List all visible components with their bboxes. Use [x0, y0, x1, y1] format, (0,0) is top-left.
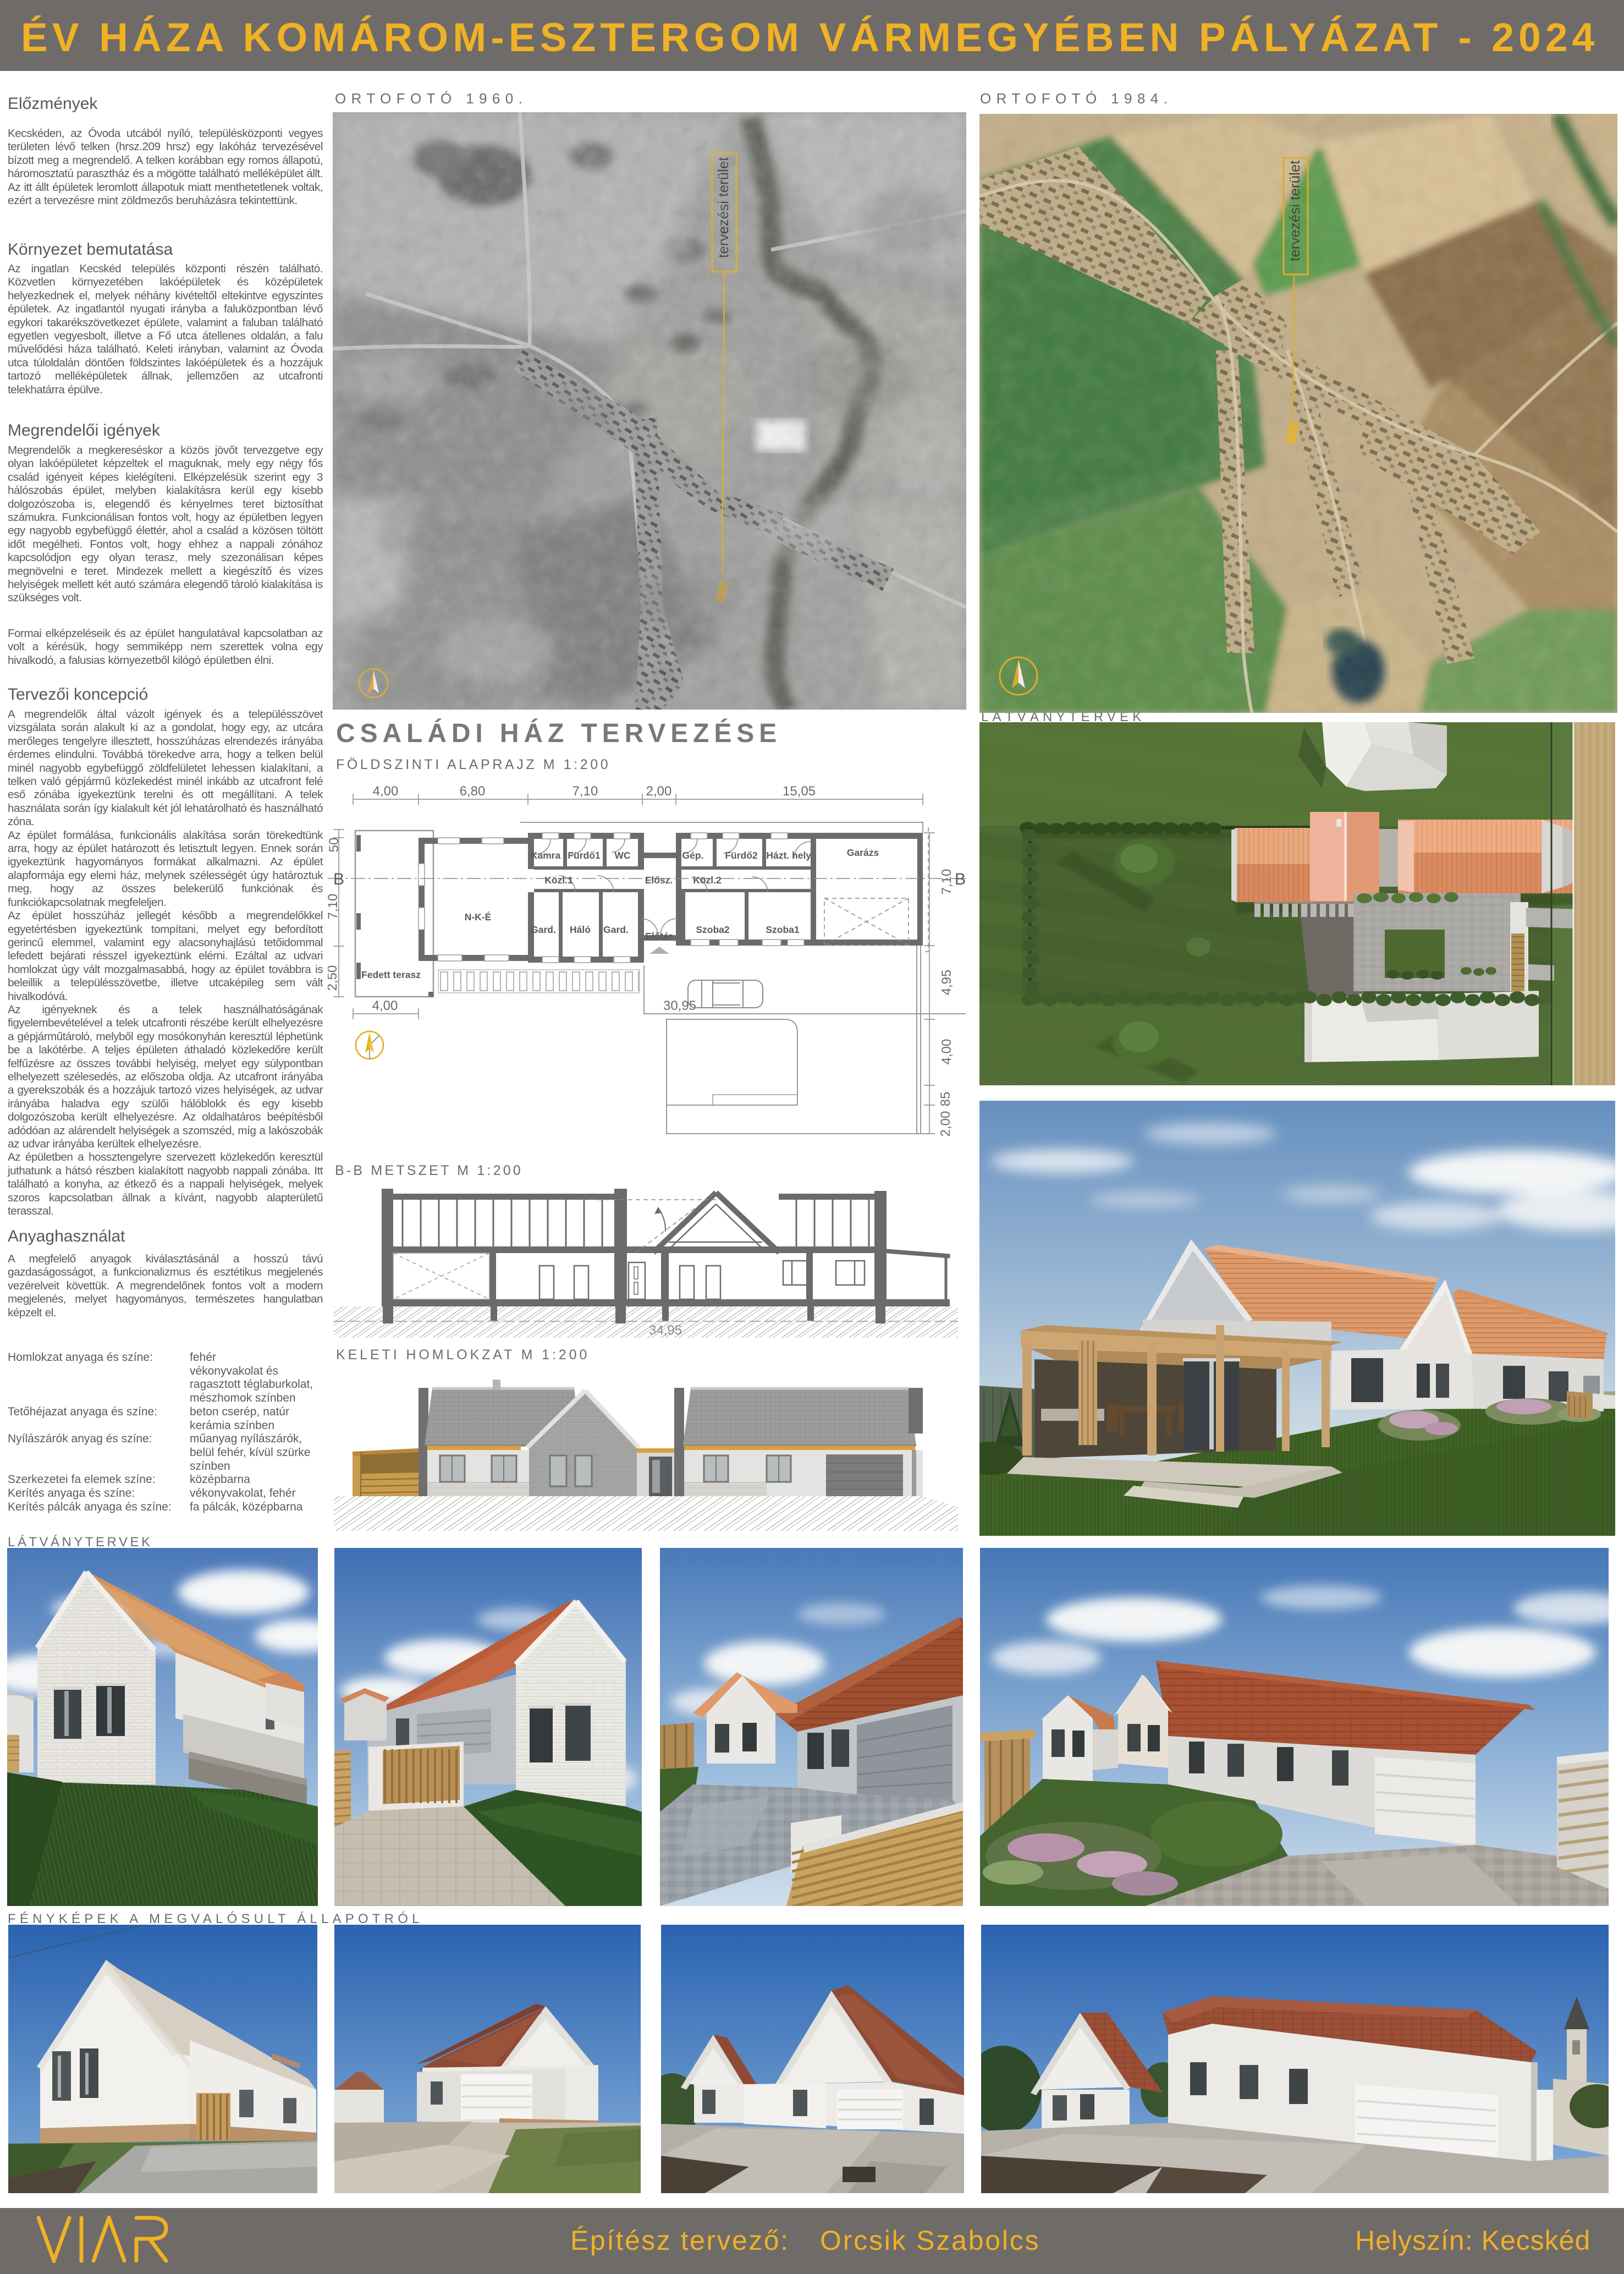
svg-text:Fürdő1: Fürdő1: [568, 850, 601, 861]
svg-text:7,10: 7,10: [572, 784, 598, 799]
svg-text:50: 50: [328, 838, 342, 853]
svg-text:Elősz.: Elősz.: [645, 875, 673, 886]
svg-text:4,95: 4,95: [939, 970, 954, 996]
svg-text:4,00: 4,00: [372, 998, 398, 1013]
svg-text:B: B: [955, 870, 966, 888]
svg-text:85: 85: [938, 1092, 953, 1107]
svg-text:7,10: 7,10: [939, 869, 954, 895]
svg-text:4,00: 4,00: [373, 784, 399, 799]
svg-text:Kamra: Kamra: [531, 850, 561, 861]
svg-text:34,95: 34,95: [649, 1323, 682, 1338]
svg-text:4,00: 4,00: [939, 1039, 954, 1065]
svg-text:Közl.1: Közl.1: [544, 875, 573, 886]
svg-text:Gard.: Gard.: [531, 924, 556, 935]
svg-text:Háló: Háló: [570, 924, 591, 935]
svg-text:Garázs: Garázs: [847, 847, 879, 858]
svg-text:Gard.: Gard.: [603, 924, 629, 935]
svg-text:Házt. hely.: Házt. hely.: [766, 850, 813, 861]
svg-text:2,00: 2,00: [646, 784, 672, 799]
svg-text:B: B: [333, 870, 344, 888]
svg-text:Előtér: Előtér: [645, 931, 673, 942]
svg-text:Fürdő2: Fürdő2: [725, 850, 758, 861]
svg-text:Fedett terasz: Fedett terasz: [361, 969, 421, 980]
svg-text:6,80: 6,80: [460, 784, 486, 799]
svg-text:WC: WC: [614, 850, 631, 861]
svg-text:15,05: 15,05: [783, 784, 816, 799]
svg-text:Szoba2: Szoba2: [696, 924, 730, 935]
svg-text:Szoba1: Szoba1: [766, 924, 800, 935]
svg-text:Gép.: Gép.: [682, 850, 704, 861]
svg-text:2,00: 2,00: [938, 1111, 953, 1137]
svg-text:Közl.2: Közl.2: [693, 875, 722, 886]
svg-text:2,50: 2,50: [328, 965, 340, 991]
svg-text:N-K-É: N-K-É: [465, 911, 492, 922]
svg-text:40°: 40°: [611, 1211, 631, 1231]
